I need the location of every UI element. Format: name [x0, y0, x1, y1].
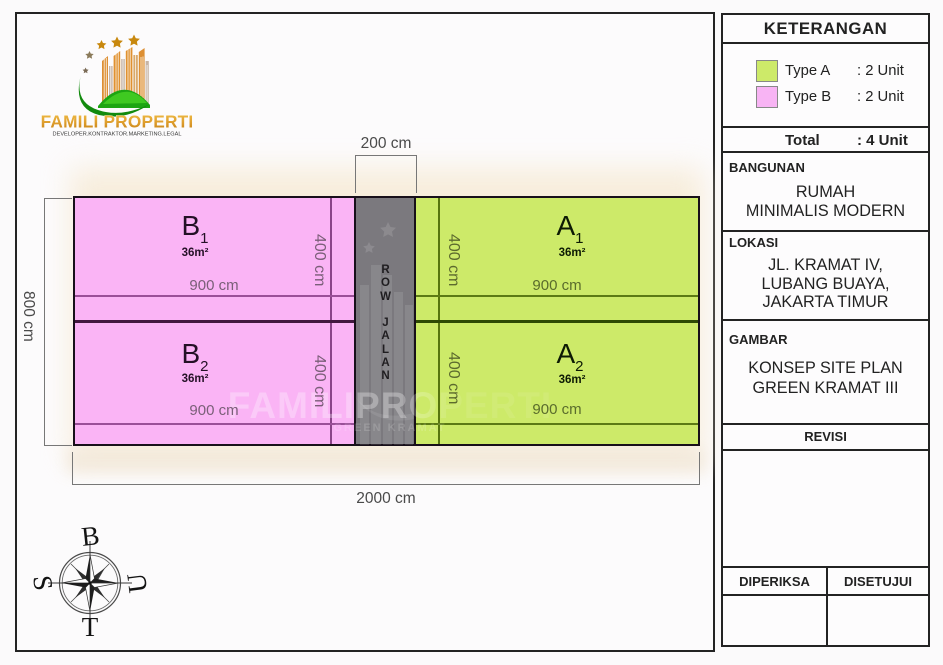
svg-text:T: T [82, 612, 99, 642]
svg-text:FAMILI PROPERTI: FAMILI PROPERTI [41, 112, 194, 132]
svg-text:DEVELOPER.KONTRAKTOR.MARKETING: DEVELOPER.KONTRAKTOR.MARKETING.LEGAL [53, 132, 182, 138]
svg-text:B: B [80, 520, 101, 552]
svg-text:S: S [27, 574, 59, 593]
svg-text:U: U [121, 572, 153, 595]
